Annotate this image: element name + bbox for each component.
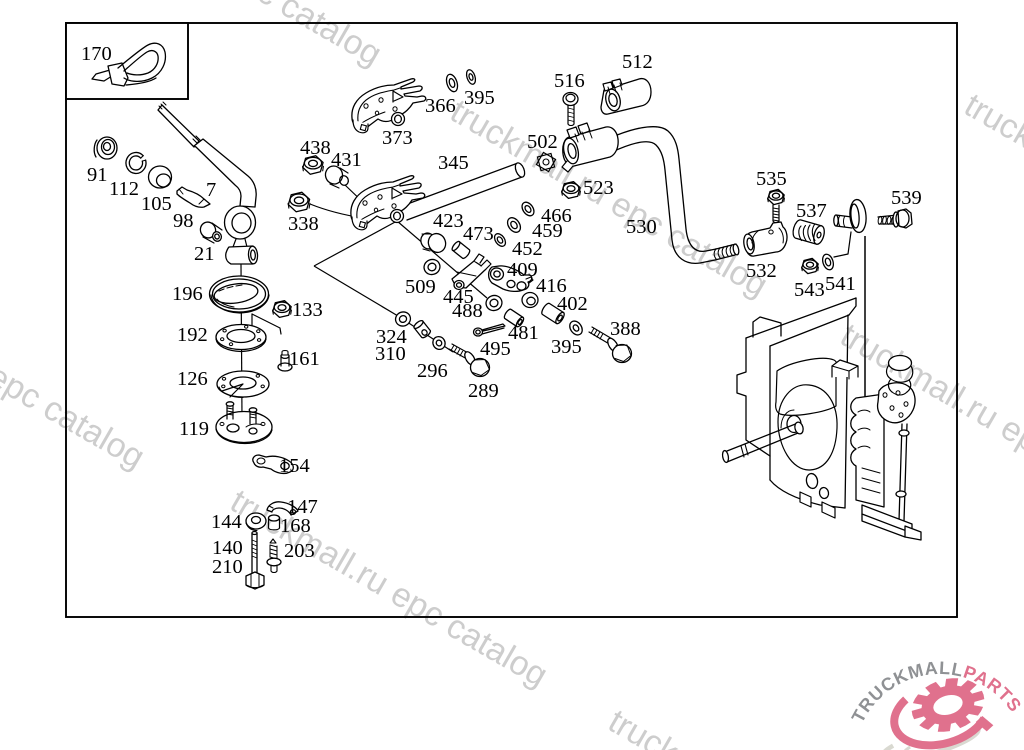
svg-text:395: 395 — [464, 87, 495, 109]
svg-text:532: 532 — [746, 260, 777, 282]
svg-text:192: 192 — [177, 324, 208, 346]
svg-text:402: 402 — [557, 293, 588, 315]
svg-text:495: 495 — [480, 338, 511, 360]
svg-text:395: 395 — [551, 336, 582, 358]
svg-text:388: 388 — [610, 318, 641, 340]
svg-text:366: 366 — [425, 95, 456, 117]
svg-text:98: 98 — [173, 210, 194, 232]
svg-text:512: 512 — [622, 51, 653, 73]
svg-text:338: 338 — [288, 213, 319, 235]
svg-text:481: 481 — [508, 322, 539, 344]
svg-text:196: 196 — [172, 283, 203, 305]
svg-text:210: 210 — [212, 556, 243, 578]
svg-text:170: 170 — [81, 43, 112, 65]
svg-text:502: 502 — [527, 131, 558, 153]
svg-text:423: 423 — [433, 210, 464, 232]
svg-text:21: 21 — [194, 243, 215, 265]
svg-text:523: 523 — [583, 177, 614, 199]
svg-text:373: 373 — [382, 127, 413, 149]
svg-text:7: 7 — [206, 179, 216, 201]
svg-text:509: 509 — [405, 276, 436, 298]
svg-text:161: 161 — [289, 348, 320, 370]
svg-text:438: 438 — [300, 137, 331, 159]
svg-text:112: 112 — [109, 178, 139, 200]
svg-text:168: 168 — [280, 515, 311, 537]
svg-text:345: 345 — [438, 152, 469, 174]
svg-text:539: 539 — [891, 187, 922, 209]
svg-text:310: 310 — [375, 343, 406, 365]
svg-text:409: 409 — [507, 259, 538, 281]
svg-text:452: 452 — [512, 238, 543, 260]
svg-text:537: 537 — [796, 200, 827, 222]
svg-text:133: 133 — [292, 299, 323, 321]
svg-text:543: 543 — [794, 279, 825, 301]
svg-text:473: 473 — [463, 223, 494, 245]
svg-text:289: 289 — [468, 380, 499, 402]
svg-text:530: 530 — [626, 216, 657, 238]
svg-text:126: 126 — [177, 368, 208, 390]
svg-text:203: 203 — [284, 540, 315, 562]
svg-text:91: 91 — [87, 164, 108, 186]
svg-text:535: 535 — [756, 168, 787, 190]
svg-text:431: 431 — [331, 149, 362, 171]
svg-text:541: 541 — [825, 273, 856, 295]
svg-text:154: 154 — [279, 455, 310, 477]
svg-text:105: 105 — [141, 193, 172, 215]
svg-text:516: 516 — [554, 70, 585, 92]
svg-text:119: 119 — [179, 418, 209, 440]
svg-text:488: 488 — [452, 300, 483, 322]
svg-text:296: 296 — [417, 360, 448, 382]
svg-text:144: 144 — [211, 511, 242, 533]
